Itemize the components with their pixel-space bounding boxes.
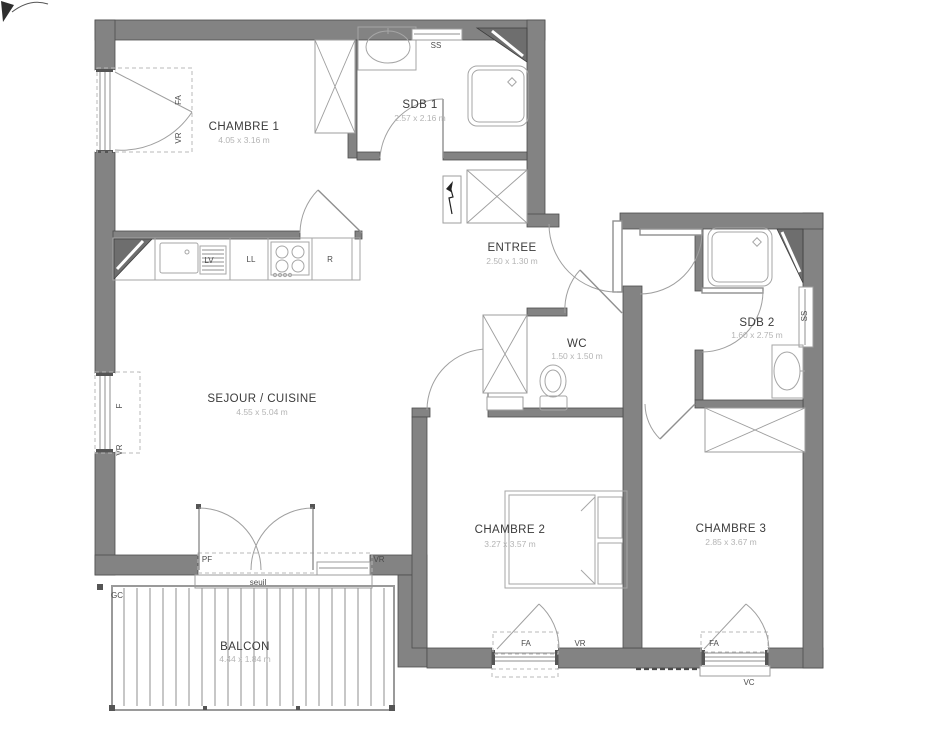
- room-label-sdb1: SDB 1: [402, 99, 437, 111]
- tag-pf: PF: [202, 555, 212, 564]
- tag-fa-chambre3: FA: [709, 639, 719, 648]
- wall-left-a: [95, 20, 115, 70]
- wall-sejour-bottom-left: [95, 555, 198, 575]
- room-label-balcon: BALCON: [220, 641, 270, 653]
- closet-entree: [467, 170, 527, 223]
- tag-lv: LV: [204, 256, 214, 265]
- wall-sdb1-right: [527, 20, 545, 216]
- tag-r: R: [327, 255, 333, 264]
- tag-vc-chambre3: VC: [743, 678, 754, 687]
- room-label-entree: ENTREE: [487, 242, 536, 254]
- room-label-chambre3: CHAMBRE 3: [696, 523, 767, 535]
- tag-vr-sejour: VR: [115, 444, 124, 455]
- towel-dryer-sdb1: [412, 29, 462, 40]
- floor-plan-page: CHAMBRE 1 4.05 x 3.16 m SDB 1 2.57 x 2.1…: [0, 0, 945, 732]
- tag-seuil: seuil: [250, 578, 267, 587]
- tag-vr-chambre1: VR: [174, 132, 183, 143]
- wall-right: [803, 213, 823, 668]
- vc-sliding-shutter: [700, 666, 770, 676]
- wall-mid-bottom: [558, 648, 702, 668]
- door-entrance: [613, 221, 622, 292]
- wall-left-b: [95, 152, 115, 373]
- door-sdb2: [702, 288, 763, 293]
- room-dims-sdb2: 1.60 x 2.75 m: [731, 330, 783, 340]
- wall-rightsection-top: [620, 213, 823, 229]
- wall-sdb1-bottom-left: [357, 152, 380, 160]
- door-night-hall: [640, 229, 702, 235]
- wall-sdb2-left-b: [695, 350, 703, 400]
- wall-middle-column: [623, 286, 642, 648]
- wall-ch2-bottom: [427, 648, 492, 668]
- wall-entry-nub: [527, 214, 559, 227]
- closet-chambre3: [705, 408, 805, 452]
- room-dims-sdb1: 2.57 x 2.16 m: [394, 113, 446, 123]
- room-dims-chambre2: 3.27 x 3.57 m: [484, 539, 536, 549]
- tag-ll: LL: [247, 255, 256, 264]
- room-label-sejour: SEJOUR / CUISINE: [207, 393, 316, 405]
- room-dims-sejour: 4.55 x 5.04 m: [236, 407, 288, 417]
- tag-vr-pf: VR: [373, 555, 384, 564]
- tag-vr-chambre2: VR: [574, 639, 585, 648]
- tag-ss-sdb1: SS: [431, 41, 442, 50]
- wall-sejour-ch2: [412, 417, 427, 648]
- room-dims-wc: 1.50 x 1.50 m: [551, 351, 603, 361]
- wall-sdb1-bottom-right: [443, 152, 527, 160]
- room-dims-chambre1: 4.05 x 3.16 m: [218, 135, 270, 145]
- room-dims-chambre3: 2.85 x 3.67 m: [705, 537, 757, 547]
- tag-fa-chambre2: FA: [521, 639, 531, 648]
- room-dims-balcon: 4.44 x 1.84 m: [219, 654, 271, 664]
- tag-f-sejour: F: [115, 403, 124, 408]
- tag-ss-sdb2: SS: [800, 311, 809, 322]
- electric-panel-icon: [443, 176, 461, 223]
- room-dims-entree: 2.50 x 1.30 m: [486, 256, 538, 266]
- room-label-chambre2: CHAMBRE 2: [475, 524, 546, 536]
- room-label-chambre1: CHAMBRE 1: [209, 121, 280, 133]
- room-label-sdb2: SDB 2: [739, 317, 774, 329]
- floor-plan-drawing: CHAMBRE 1 4.05 x 3.16 m SDB 1 2.57 x 2.1…: [0, 0, 945, 732]
- closet-chambre1: [315, 40, 355, 133]
- room-label-wc: WC: [567, 338, 587, 350]
- wall-wc-top: [527, 308, 567, 316]
- tag-fa-chambre1: FA: [174, 94, 183, 104]
- wall-sdb2-bottom: [695, 400, 803, 408]
- wall-top: [95, 20, 545, 40]
- tag-gc: GC: [111, 591, 123, 600]
